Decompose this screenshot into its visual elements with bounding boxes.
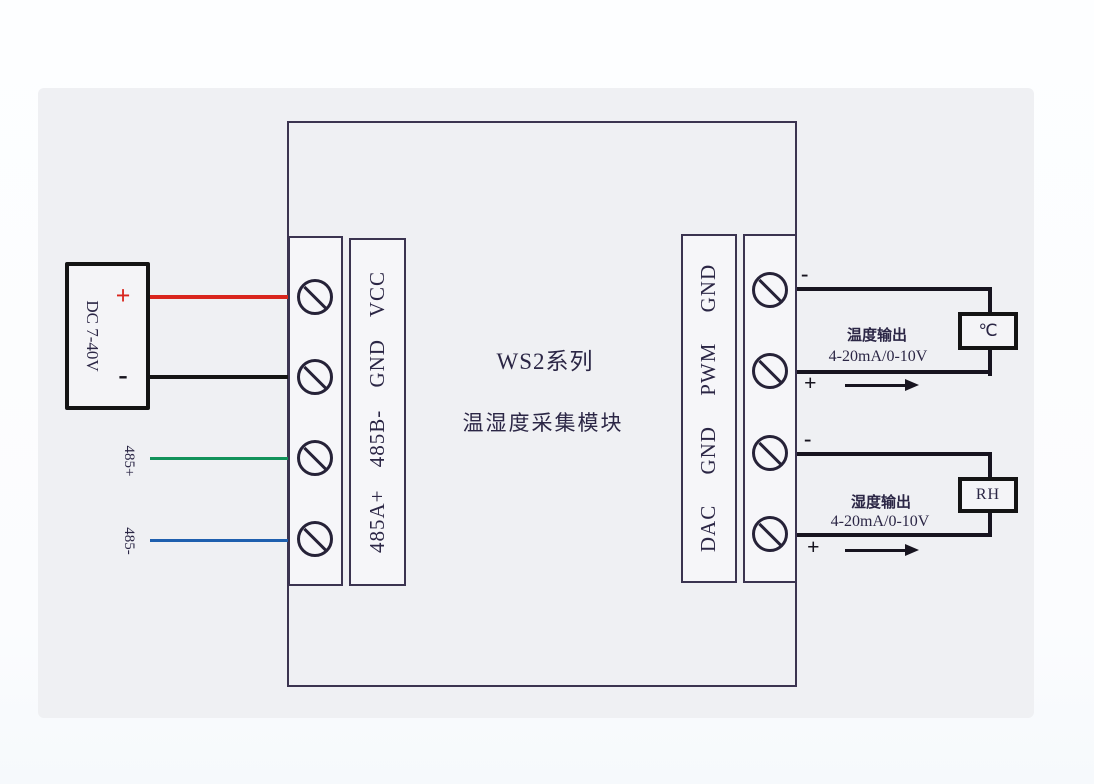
screw-terminal-icon [297, 359, 333, 395]
temperature-sensor-box: ℃ [958, 312, 1018, 350]
wiring-diagram: WS2系列 温湿度采集模块 485A+ 485B- GND VCC DC 7-4… [0, 0, 1094, 784]
humidity-loop-bottom-wire [797, 533, 992, 537]
rs485-minus-wire [150, 539, 288, 542]
screw-terminal-icon [297, 521, 333, 557]
right-terminal-labels: DAC GND PWM GND [696, 238, 722, 578]
rs485-plus-label: 485+ [119, 433, 137, 489]
module-subtitle: 温湿度采集模块 [423, 407, 663, 437]
rs485-plus-wire [150, 457, 288, 460]
gnd-power-wire [150, 375, 288, 379]
screw-terminal-icon [297, 279, 333, 315]
power-positive-sign: + [110, 283, 136, 309]
temp-loop-bottom-wire [797, 370, 992, 374]
screw-terminal-icon [297, 440, 333, 476]
screw-terminal-icon [752, 353, 788, 389]
screw-terminal-icon [752, 272, 788, 308]
humidity-minus-sign: - [804, 428, 811, 450]
temp-output-range: 4-20mA/0-10V [798, 348, 958, 366]
left-terminal-labels: 485A+ 485B- GND VCC [365, 242, 391, 582]
humidity-sensor-box: RH [958, 477, 1018, 513]
arrow-right-icon [905, 544, 919, 556]
temp-minus-sign: - [801, 263, 808, 285]
power-supply-label: DC 7-40V [80, 271, 102, 401]
temp-loop-top-wire [797, 287, 992, 291]
vcc-power-wire [150, 295, 288, 299]
screw-terminal-icon [752, 516, 788, 552]
power-supply-box [65, 262, 150, 410]
temp-output-name: 温度输出 [817, 324, 937, 345]
humidity-output-range: 4-20mA/0-10V [800, 513, 960, 531]
power-negative-sign: - [110, 362, 136, 390]
humidity-output-name: 湿度输出 [821, 491, 941, 512]
temp-plus-sign: + [804, 372, 817, 394]
screw-terminal-icon [752, 435, 788, 471]
humidity-loop-top-wire [797, 452, 992, 456]
humidity-plus-sign: + [807, 536, 820, 558]
temp-current-direction-arrow [845, 384, 907, 387]
module-title: WS2系列 [445, 342, 645, 376]
humidity-current-direction-arrow [845, 549, 907, 552]
rs485-minus-label: 485- [119, 513, 137, 569]
arrow-right-icon [905, 379, 919, 391]
